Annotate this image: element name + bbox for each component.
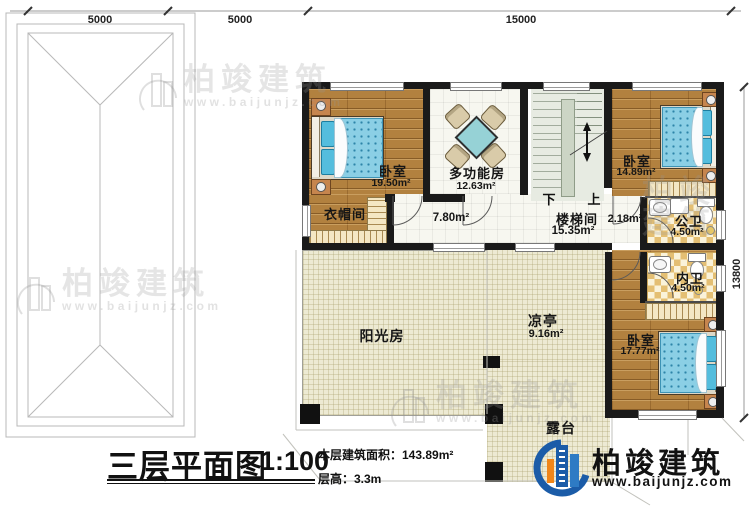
wall — [302, 243, 433, 250]
bed-blanket-fold — [691, 107, 703, 167]
area-stairwell: 15.35m² — [552, 225, 595, 237]
stair-up-label: 上 — [587, 189, 600, 208]
window — [632, 82, 702, 91]
watermark-logo-icon — [138, 64, 180, 116]
bed-bedroom2 — [660, 105, 719, 169]
info-floor-height: 层高：3.3m — [318, 470, 381, 487]
area-bedroom3: 17.77m² — [620, 345, 659, 357]
dim-top-3: 15000 — [506, 14, 537, 26]
watermark: 柏竣建筑 www.baijunjz.com — [16, 268, 222, 320]
wall — [605, 252, 612, 410]
column — [300, 404, 320, 424]
wall — [385, 194, 395, 202]
stair-treads-right-flight — [577, 93, 602, 131]
window — [543, 82, 590, 91]
wardrobe-cloakroom-side — [367, 197, 387, 232]
area-pavilion: 9.16m² — [529, 328, 564, 340]
window — [302, 205, 311, 237]
sink — [649, 199, 671, 216]
wall — [553, 243, 612, 250]
window — [515, 243, 555, 252]
wall — [423, 89, 430, 194]
wall-thin — [645, 196, 716, 198]
column — [485, 462, 503, 482]
bed-pillow — [321, 149, 335, 175]
area-inner-bath: 4.50m² — [671, 282, 704, 294]
bed-bedroom3 — [658, 331, 724, 395]
title-underline — [107, 483, 315, 484]
window — [716, 330, 726, 387]
info-floor-area: 本层建筑面积：143.89m² — [318, 446, 453, 463]
wall — [302, 82, 330, 89]
area-public-bath: 4.50m² — [670, 226, 703, 238]
company-logo-icon — [531, 437, 589, 499]
floor-pavilion — [487, 250, 610, 360]
bed-blanket-fold — [695, 333, 707, 393]
dim-right: 13800 — [731, 259, 743, 290]
window — [716, 210, 726, 240]
area-corridor: 2.18m² — [608, 213, 643, 225]
shower-head — [706, 226, 715, 235]
window — [638, 410, 697, 420]
column — [483, 356, 500, 368]
window — [716, 265, 726, 292]
wall — [605, 410, 638, 418]
wall — [423, 194, 465, 202]
window — [330, 82, 404, 91]
bed-headboard — [312, 117, 320, 177]
nightstand — [311, 98, 331, 116]
floor-plan-canvas: 5000 5000 15000 13800 下 上 — [0, 0, 750, 507]
wall — [483, 243, 515, 250]
nightstand — [311, 179, 331, 195]
title-underline — [107, 479, 315, 481]
wall — [716, 290, 724, 330]
stair-railing — [561, 99, 575, 197]
wall — [695, 410, 724, 418]
roof-plan — [6, 13, 195, 437]
wall — [640, 243, 724, 250]
label-sunroom: 阳光房 — [360, 326, 405, 346]
window — [450, 82, 502, 91]
company-logo-url: www.baijunjz.com — [592, 474, 733, 489]
stair-down-label: 下 — [542, 189, 555, 208]
wall-thin — [645, 301, 716, 303]
wall — [302, 89, 309, 205]
dim-top-1: 5000 — [88, 14, 112, 26]
dimension-ticks-top — [24, 7, 735, 15]
label-cloakroom: 衣帽间 — [324, 204, 366, 223]
wall — [500, 82, 543, 89]
wall — [604, 82, 612, 188]
wall — [520, 89, 528, 195]
area-hallway: 7.80m² — [433, 212, 469, 224]
watermark-logo-icon — [16, 268, 58, 320]
bed-bedroom1 — [311, 116, 384, 180]
wall — [402, 82, 450, 89]
wall — [640, 252, 647, 303]
sink — [649, 256, 671, 273]
column — [485, 404, 503, 424]
dim-top-2: 5000 — [228, 14, 252, 26]
dimension-ticks-right — [740, 83, 748, 422]
wall — [716, 82, 724, 210]
area-bedroom1: 19.50m² — [371, 177, 410, 189]
bed-pillow — [321, 121, 335, 147]
area-bedroom2: 14.89m² — [616, 166, 655, 178]
area-multifunction: 12.63m² — [456, 180, 495, 192]
window — [433, 243, 485, 252]
staircase — [531, 89, 604, 201]
label-terrace: 露台 — [546, 418, 576, 438]
